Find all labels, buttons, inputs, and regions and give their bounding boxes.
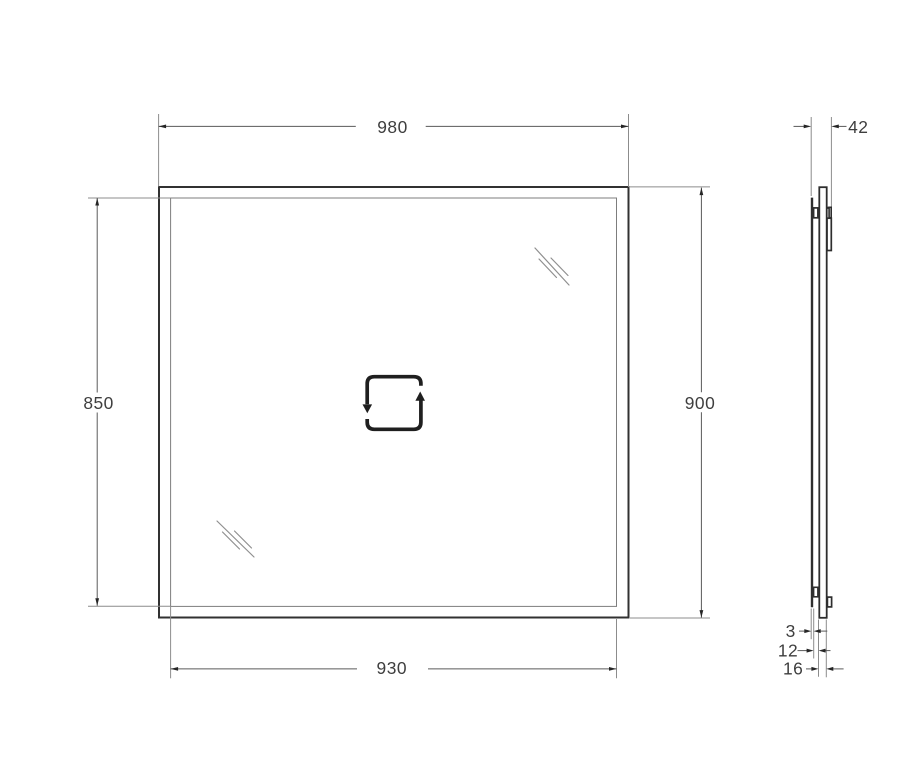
svg-text:980: 980 <box>377 117 408 137</box>
svg-text:3: 3 <box>786 621 796 641</box>
svg-text:930: 930 <box>377 658 408 678</box>
svg-text:900: 900 <box>685 393 716 413</box>
svg-text:42: 42 <box>848 117 868 137</box>
svg-text:850: 850 <box>83 393 114 413</box>
svg-text:16: 16 <box>783 659 803 679</box>
